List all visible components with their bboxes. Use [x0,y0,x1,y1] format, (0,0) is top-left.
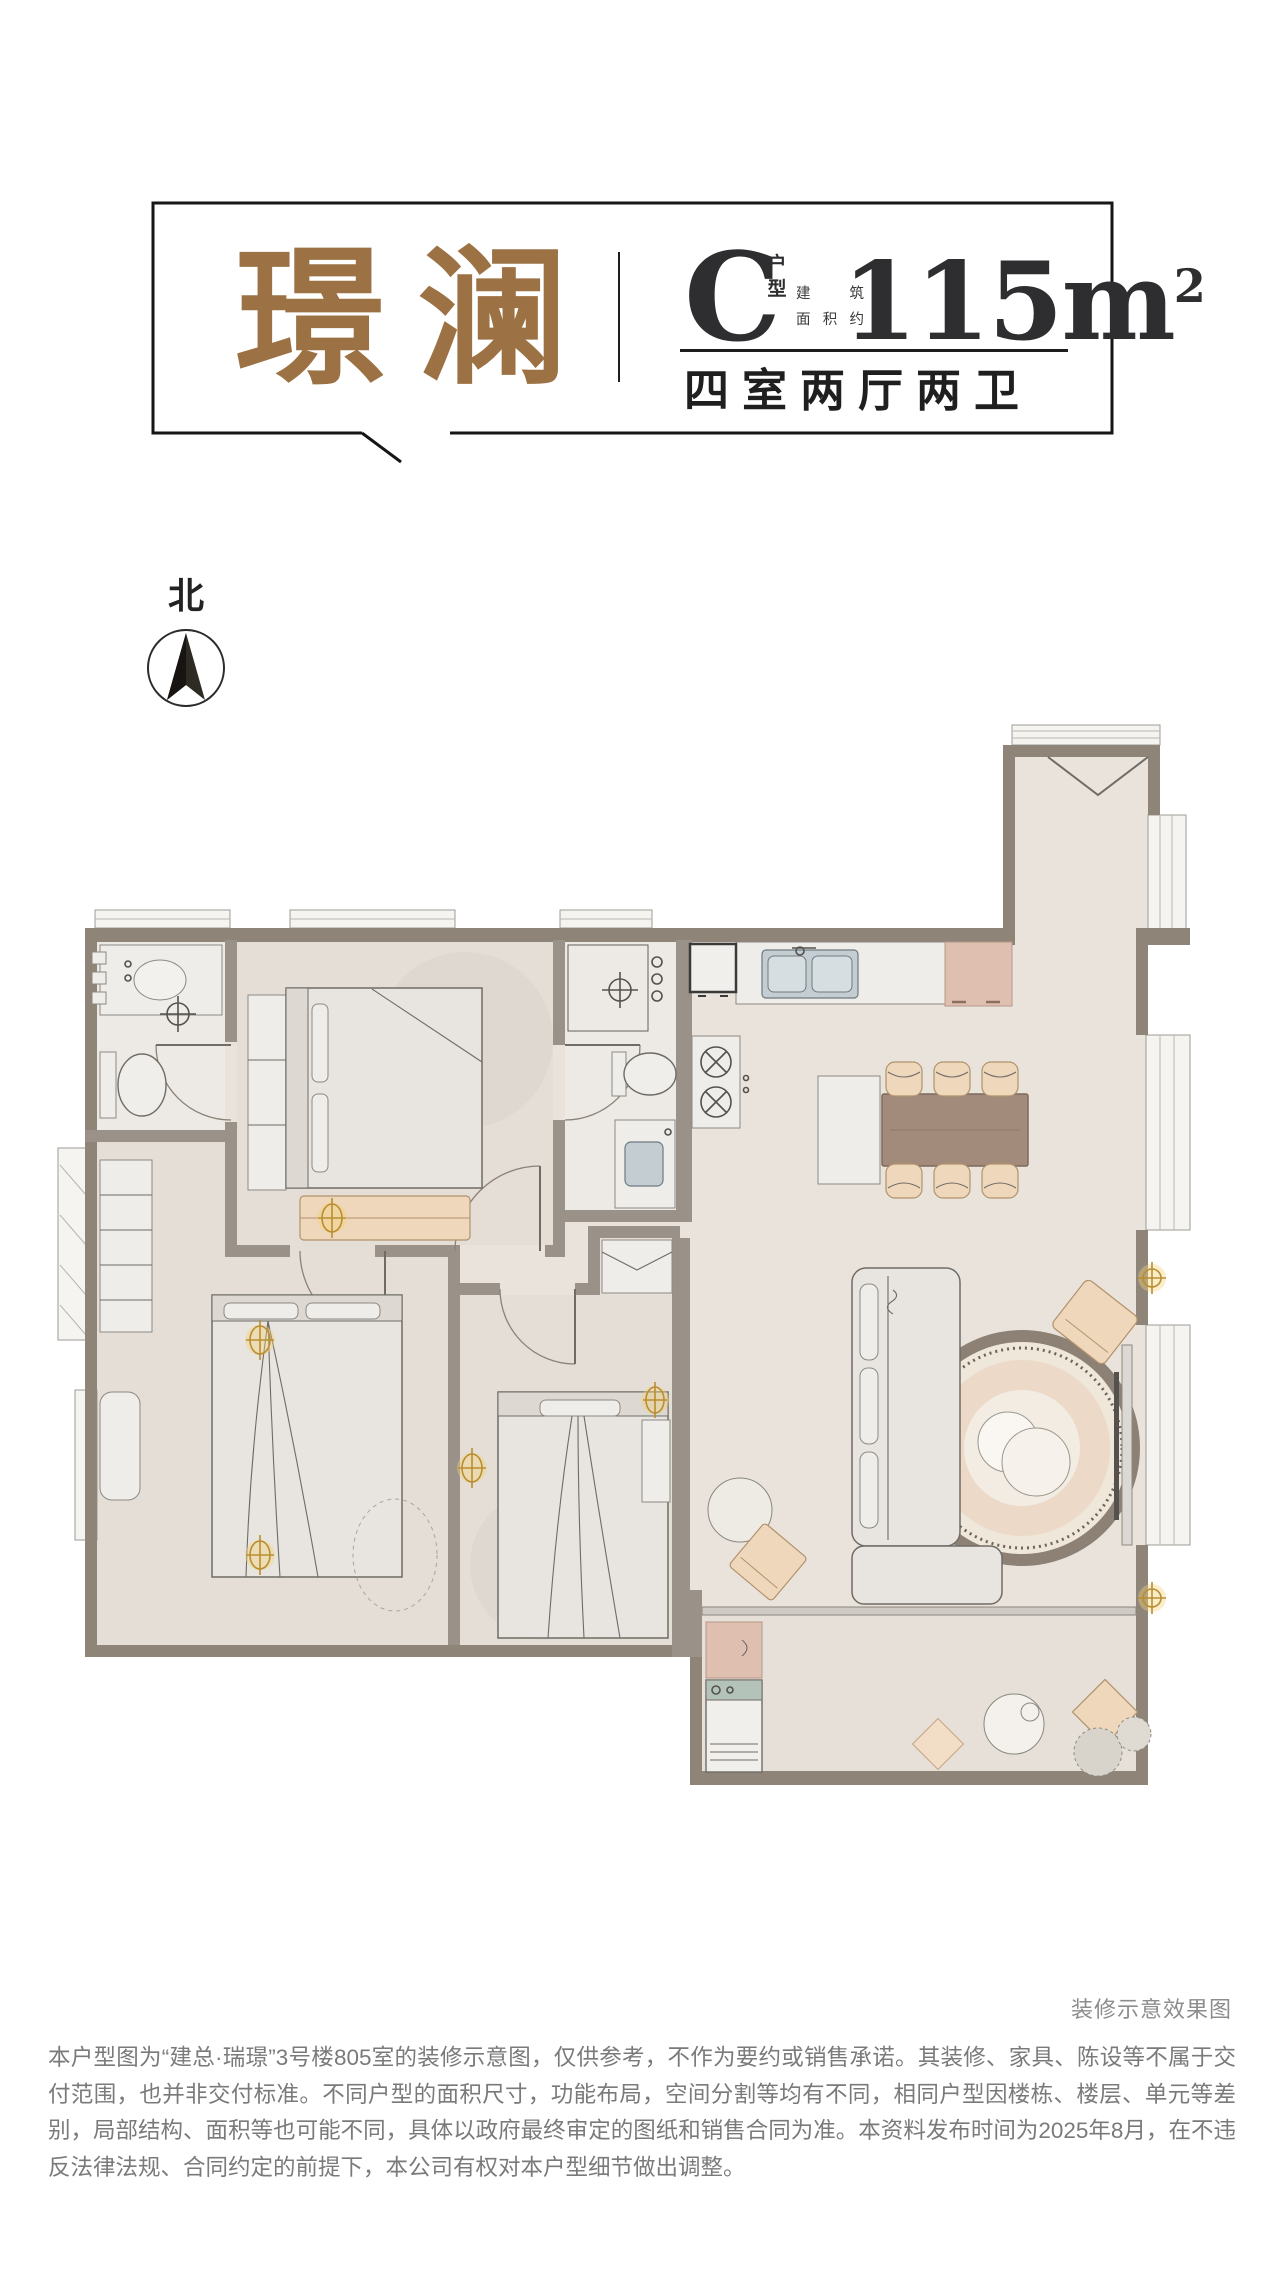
chair [934,1164,970,1198]
unit-type-label: 户型 [766,252,788,302]
north-label: 北 [168,575,204,616]
page: 璟澜 C 户型 建筑 面积约 115m2 四室两厅两卫 北 [0,0,1280,2275]
project-name: 璟澜 [235,230,599,406]
page-title: 璟澜 [235,238,655,408]
bed [212,1295,402,1577]
header-rule [680,349,1068,352]
sideboard [818,1076,880,1184]
tv [1114,1372,1119,1520]
toilet [100,1052,116,1118]
plant [1074,1728,1122,1776]
chair [982,1164,1018,1198]
dresser [642,1420,670,1502]
tv-console [1122,1345,1132,1545]
plant [1117,1717,1151,1751]
kitchen-cabinet [945,942,1012,1006]
chair [886,1062,922,1096]
nightstand [100,1392,140,1500]
laundry-cabinet [706,1622,762,1678]
floor-plan [0,700,1280,1820]
speech-tail-icon [362,433,401,462]
balcony-slider [702,1607,1136,1615]
render-caption: 装修示意效果图 [1071,1992,1232,2024]
ac-platform [58,1148,88,1340]
wardrobe [248,995,286,1190]
stove-counter [692,1036,740,1128]
chaise [852,1546,1002,1604]
balcony-table [984,1694,1044,1754]
closet [602,1240,672,1293]
disclaimer-text: 本户型图为“建总·瑞璟”3号楼805室的装修示意图，仅供参考，不作为要约或销售承… [48,2040,1236,2186]
compass: 北 [140,563,236,715]
header-divider [618,252,620,382]
shelving [100,1160,152,1332]
chair [982,1062,1018,1096]
fridge [690,944,736,992]
chair [886,1164,922,1198]
layout-description: 四室两厅两卫 [684,362,1064,420]
north-arrow-icon [148,630,224,706]
chair [934,1062,970,1096]
area-value: 115m2 [842,232,1206,356]
area-superscript: 2 [1174,259,1206,313]
